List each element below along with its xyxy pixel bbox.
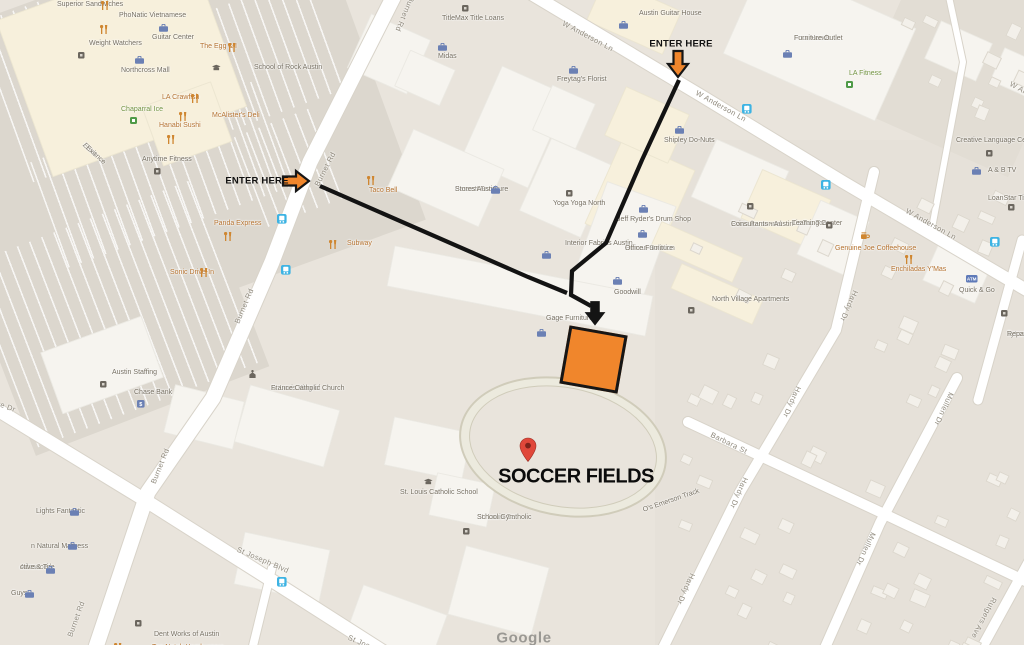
enter-here-label-north: ENTER HERE (649, 39, 712, 50)
soccer-fields-label: SOCCER FIELDS (498, 466, 654, 489)
map-canvas[interactable]: Burnet RdBurnet RdBurnet RdBurnet RdBurn… (0, 0, 1024, 645)
route-lines (0, 0, 1024, 645)
enter-here-label-west: ENTER HERE (225, 176, 288, 187)
google-watermark: Google (496, 630, 551, 645)
